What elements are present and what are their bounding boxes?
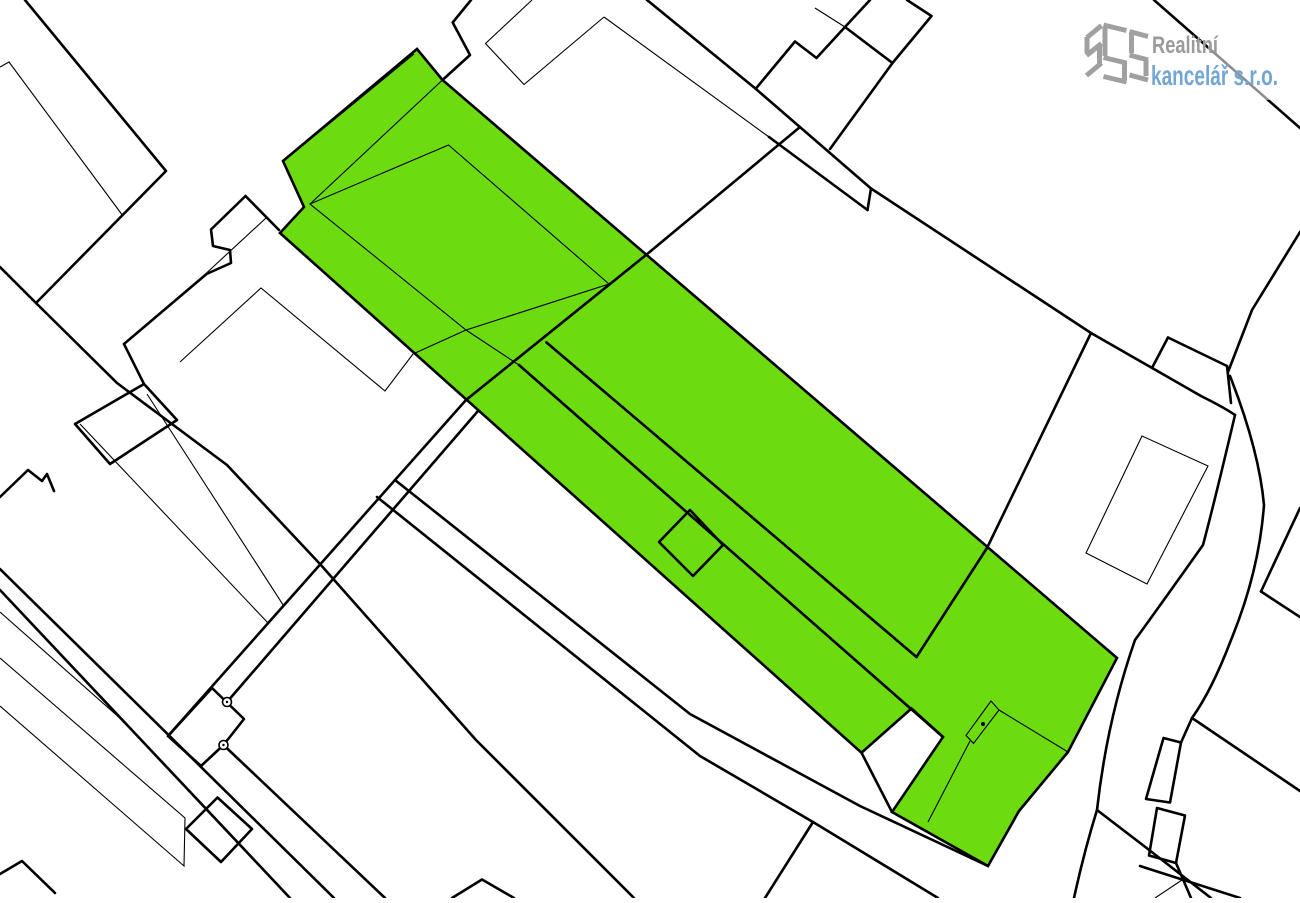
svg-text:kancelář s.r.o.: kancelář s.r.o. bbox=[1151, 60, 1278, 91]
svg-text:Realitní: Realitní bbox=[1152, 32, 1219, 59]
